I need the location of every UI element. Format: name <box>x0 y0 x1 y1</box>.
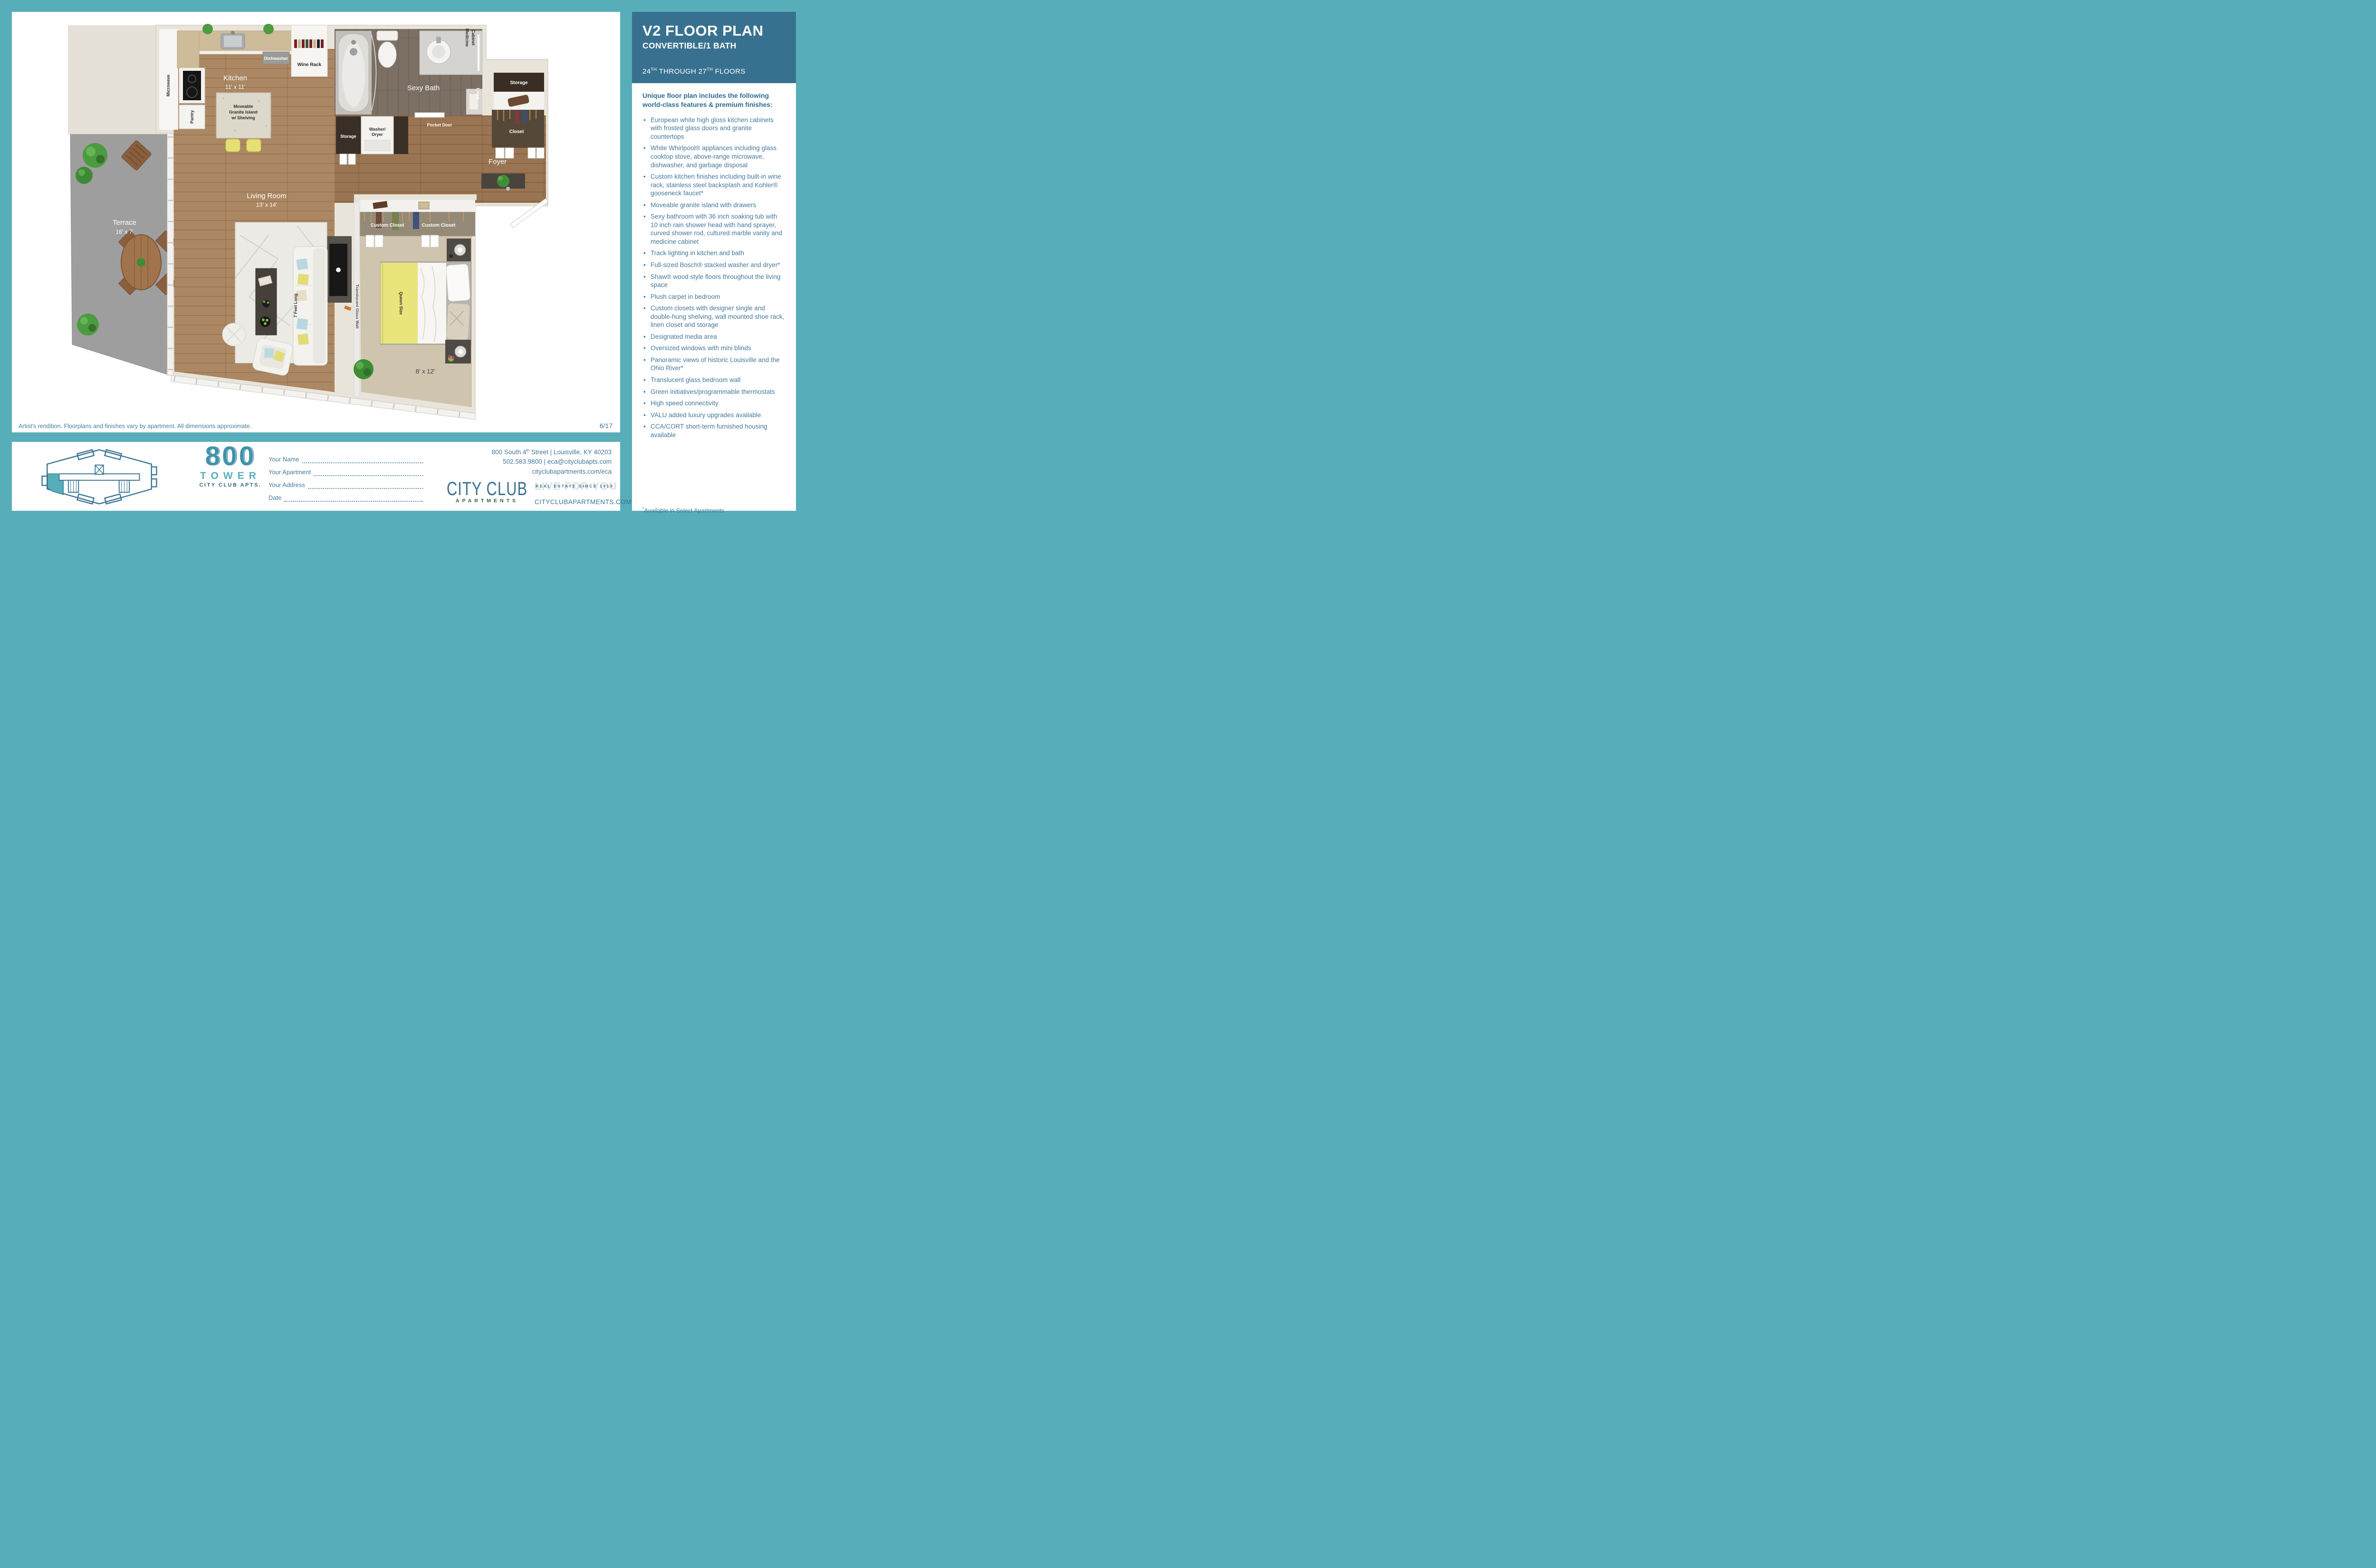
feature-item: Custom kitchen finishes including built-… <box>642 172 786 198</box>
footer-strip: 800 TOWER CITY CLUB APTS. Your Name Your… <box>12 442 620 511</box>
feature-item: Full-sized Bosch® stacked washer and dry… <box>642 261 786 269</box>
footnote: *Available in Select Apartments <box>642 507 724 514</box>
feature-item: Green initiatives/programmable thermosta… <box>642 388 786 396</box>
island-chair-icon <box>226 139 240 152</box>
media-console <box>326 236 352 311</box>
custom-closet-label: Custom Closet <box>371 223 404 228</box>
tower-logo-name: TOWER <box>185 471 276 481</box>
pillow-icon <box>446 264 470 301</box>
contact-address-text: Street | Louisville, KY 40203 <box>529 449 612 456</box>
svg-text:Cabinet: Cabinet <box>471 29 476 45</box>
features-intro: Unique floor plan includes the following… <box>642 91 786 109</box>
pillow-icon <box>297 318 308 330</box>
signup-form: Your Name Your Apartment Your Address Da… <box>268 450 423 502</box>
pillow-icon <box>297 334 309 345</box>
feature-item: Oversized windows with mini blinds <box>642 344 786 353</box>
kitchen-dims-label: 11' x 11' <box>225 84 245 90</box>
address-field-line[interactable] <box>308 482 423 489</box>
entry-storage: Storage <box>494 73 544 110</box>
kitchen-label: Kitchen <box>223 74 247 82</box>
feature-item: Sexy bathroom with 36 inch soaking tub w… <box>642 212 786 246</box>
coffee-table <box>256 268 277 335</box>
linen-label: Linen <box>476 88 480 99</box>
date-field-line[interactable] <box>284 495 423 502</box>
cityclub-logo: CITY CLUB APARTMENTS <box>440 478 535 504</box>
sidebar: V2 FLOOR PLAN CONVERTIBLE/1 BATH 24TH TH… <box>632 12 796 511</box>
counter-plant-icon <box>263 24 274 34</box>
exterior-zone <box>68 25 156 134</box>
stove-icon <box>179 68 205 103</box>
terrace-window-wall <box>167 134 173 375</box>
bed-sheet <box>418 263 446 344</box>
pillow-icon <box>297 274 309 285</box>
microwave-label: Microwave <box>166 75 171 96</box>
address-field-label: Your Address <box>268 481 305 489</box>
contact-info: 800 South 4th Street | Louisville, KY 40… <box>407 448 612 477</box>
footnote-text: Available in Select Apartments <box>644 507 725 514</box>
feature-item: Track lighting in kitchen and bath <box>642 249 786 258</box>
name-field-label: Your Name <box>268 456 299 463</box>
vanity: Medicine Cabinet <box>420 29 482 75</box>
floors-text: FLOORS <box>713 67 746 76</box>
tower-logo: 800 TOWER CITY CLUB APTS. <box>185 443 276 488</box>
plan-floors: 24TH THROUGH 27TH FLOORS <box>642 67 786 76</box>
basket-icon <box>419 202 429 209</box>
queen-size-label: Queen Size <box>399 292 403 315</box>
storage-wd-label: Storage <box>340 134 356 139</box>
cityclub-tagline: LIVE FOR YOU REAL ESTATE SINCE 1919 CITY… <box>535 480 627 506</box>
floors-text: THROUGH 27 <box>657 67 707 76</box>
feature-item: CCA/CORT short-term furnished housing av… <box>642 422 786 439</box>
washer-dryer-label: Washer/ <box>369 127 386 132</box>
floors-text: 24 <box>642 67 651 76</box>
building-footprint-diagram <box>19 447 180 507</box>
feature-item: High speed connectivity <box>642 399 786 408</box>
plan-header: V2 FLOOR PLAN CONVERTIBLE/1 BATH 24TH TH… <box>632 12 796 83</box>
cityclub-logo-name: CITY CLUB <box>440 478 535 500</box>
feature-item: Custom closets with designer single and … <box>642 304 786 329</box>
storage-label: Storage <box>510 80 528 86</box>
plan-title: V2 FLOOR PLAN <box>642 23 786 38</box>
apartment-field-label: Your Apartment <box>268 468 311 476</box>
terrace-dims-label: 16' x 7' <box>115 229 133 235</box>
feature-item: Translucent glass bedroom wall <box>642 376 786 384</box>
flyer-page: Terrace 16' x 7' <box>0 0 808 523</box>
island-label: w/ Shelving <box>231 115 255 120</box>
queen-bed: Queen Size <box>381 262 471 344</box>
wine-rack: Wine Rack <box>291 25 327 76</box>
form-row: Your Apartment <box>268 463 423 476</box>
feature-item: Moveable granite island with drawers <box>642 201 786 210</box>
date-field-label: Date <box>268 494 281 502</box>
dishwasher-label: Dishwasher <box>264 56 288 61</box>
garment-icon <box>413 212 419 229</box>
granite-island: Moveable Granite Island w/ Shelving <box>216 93 271 138</box>
closet-label: Closet <box>509 129 524 134</box>
pillow-icon <box>297 258 308 270</box>
bedroom-plant-icon <box>354 359 374 379</box>
garment-icon <box>515 110 519 124</box>
name-field-line[interactable] <box>302 456 423 463</box>
floors-sup: TH <box>707 67 713 72</box>
feature-item: Plush carpet in bedroom <box>642 293 786 301</box>
feature-item: VALU added luxury upgrades available <box>642 411 786 420</box>
contact-address: 800 South 4th Street | Louisville, KY 40… <box>407 448 612 457</box>
seven-feet-label: 7 Feet Long <box>293 294 298 318</box>
floorplan-drawing: Terrace 16' x 7' <box>12 12 620 432</box>
cityclub-website[interactable]: CITYCLUBAPARTMENTS.COM <box>535 498 627 506</box>
living-room-dims-label: 13' x 14' <box>256 201 277 208</box>
bedroom-dims-label: 8' x 12' <box>416 368 435 375</box>
linen-niche: Linen <box>466 88 482 115</box>
sofa: 7 Feet Long <box>293 247 327 365</box>
sink-icon <box>221 31 245 49</box>
wine-rack-label: Wine Rack <box>297 62 322 67</box>
form-row: Your Address <box>268 476 423 489</box>
island-label: Moveable <box>233 104 253 109</box>
closet-wall <box>354 194 477 200</box>
terrace-label: Terrace <box>113 219 136 227</box>
nightstand <box>447 239 471 261</box>
tower-logo-sub: CITY CLUB APTS. <box>185 483 276 488</box>
page-number: 6/17 <box>600 422 613 430</box>
contact-address-text: 800 South 4 <box>492 449 527 456</box>
real-estate-since-label: REAL ESTATE SINCE 1919 <box>536 484 613 488</box>
garment-icon <box>522 110 527 122</box>
form-row: Date <box>268 489 423 502</box>
tower-logo-number: 800 <box>185 443 276 470</box>
toilet-icon <box>377 31 398 67</box>
sexy-bath-label: Sexy Bath <box>407 84 440 92</box>
feature-item: White Whirlpool® appliances including gl… <box>642 144 786 169</box>
pocket-door-icon <box>415 113 444 117</box>
custom-closet-label: Custom Closet <box>422 223 456 228</box>
features-list: European white high gloss kitchen cabine… <box>642 116 786 440</box>
contact-url[interactable]: cityclubapartments.com/eca <box>407 467 612 477</box>
features-section: Unique floor plan includes the following… <box>632 83 796 447</box>
washer-dryer-label: Dryer <box>372 132 383 137</box>
artist-caption: Artist's rendition. Floorplans and finis… <box>19 423 251 430</box>
ottoman-icon <box>222 323 245 346</box>
island-chair-icon <box>247 139 261 152</box>
foyer-label: Foyer <box>489 158 507 166</box>
sexy-bath: Medicine Cabinet Sexy Bath Linen <box>335 29 482 117</box>
apartment-field-line[interactable] <box>314 469 423 476</box>
plan-subtitle: CONVERTIBLE/1 BATH <box>642 41 786 51</box>
living-room-label: Living Room <box>247 192 286 200</box>
soaking-tub-icon <box>335 31 376 115</box>
feature-item: Shaw® wood style floors throughout the l… <box>642 273 786 289</box>
pillow-icon <box>446 303 470 340</box>
floors-sup: TH <box>651 67 657 72</box>
feature-item: European white high gloss kitchen cabine… <box>642 116 786 141</box>
pocket-door-label: Pocket Door <box>427 123 452 127</box>
form-row: Your Name <box>268 450 423 463</box>
terrace: Terrace 16' x 7' <box>70 134 177 374</box>
pillow-icon <box>264 348 274 358</box>
counter-plant-icon <box>202 24 213 34</box>
translucent-glass-wall-label: Translucent Glass Wall <box>355 285 360 329</box>
floorplan-panel: Terrace 16' x 7' <box>12 12 620 432</box>
kitchen-counter-left <box>177 31 199 68</box>
contact-phone-email[interactable]: 502.583.9800 | eca@cityclubapts.com <box>407 457 612 467</box>
feature-item: Designated media area <box>642 333 786 341</box>
svg-text:Medicine: Medicine <box>465 29 469 47</box>
nightstand <box>445 340 471 363</box>
island-label: Granite Island <box>229 110 258 115</box>
feature-item: Panoramic views of historic Louisville a… <box>642 356 786 373</box>
pantry-label: Pantry <box>190 110 194 124</box>
